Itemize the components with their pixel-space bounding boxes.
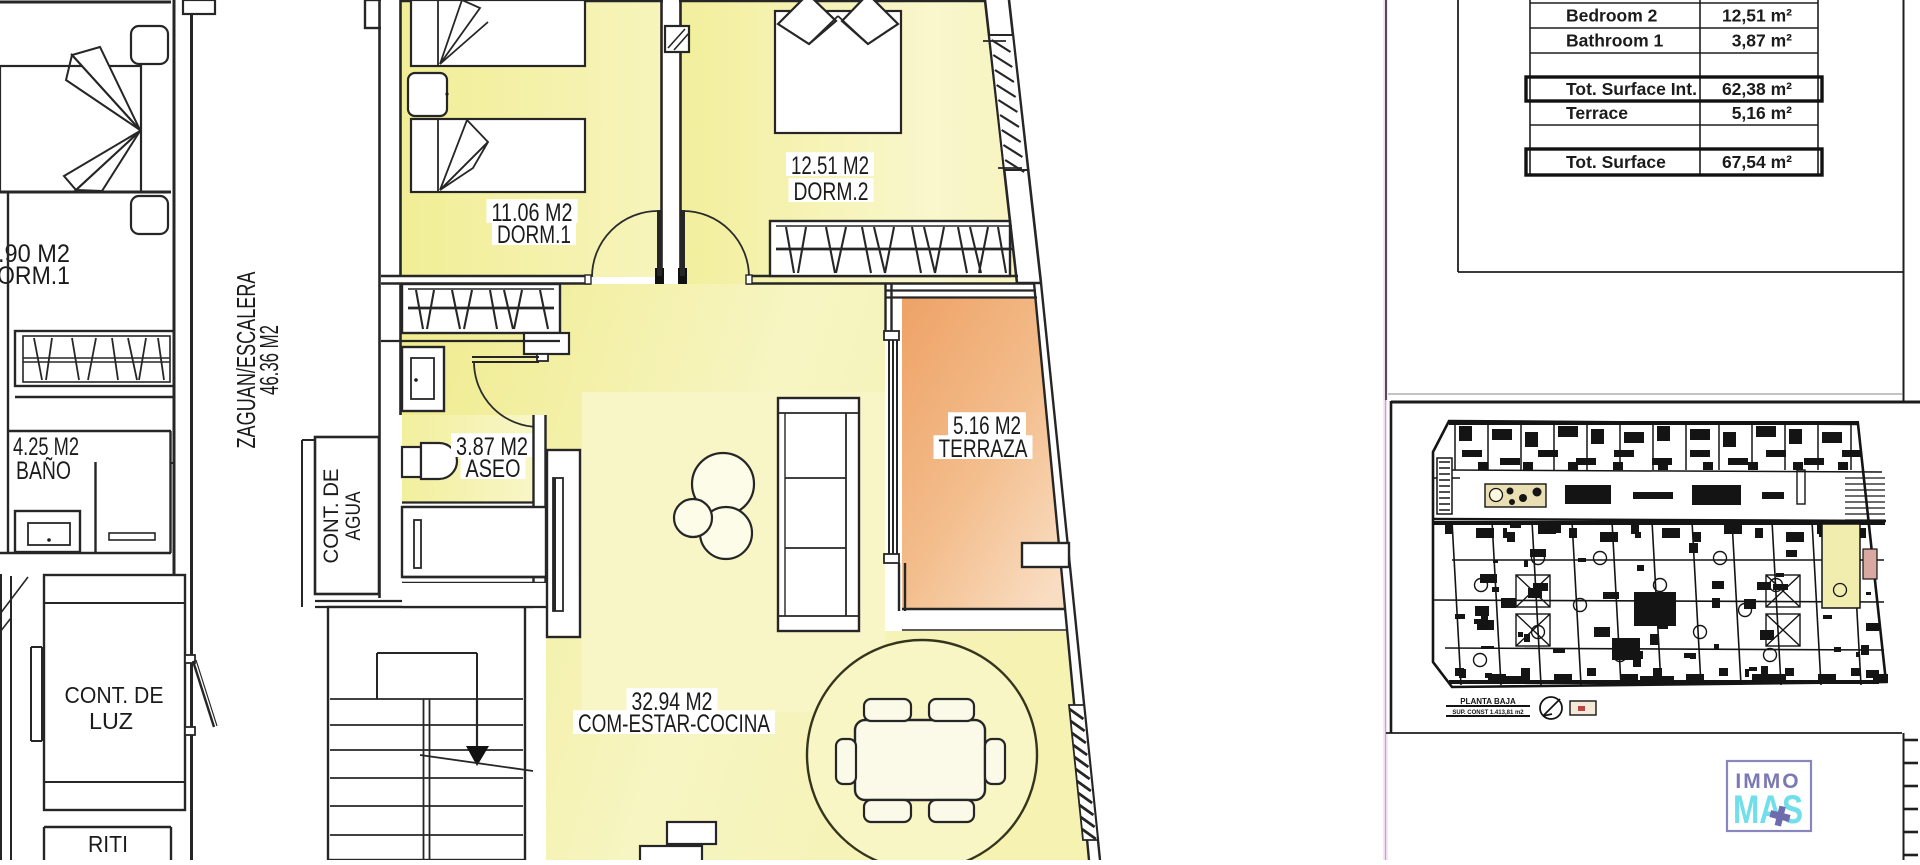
svg-text:Tot. Surface: Tot. Surface: [1566, 152, 1666, 172]
svg-text:3,87 m²: 3,87 m²: [1732, 31, 1792, 51]
svg-text:DORM.1: DORM.1: [497, 221, 571, 249]
svg-text:CONT. DE: CONT. DE: [65, 682, 164, 708]
svg-text:AGUA: AGUA: [342, 492, 365, 541]
svg-text:12,51 m²: 12,51 m²: [1722, 6, 1792, 26]
svg-text:LUZ: LUZ: [89, 708, 133, 734]
svg-text:PLANTA BAJA: PLANTA BAJA: [1460, 697, 1516, 706]
svg-text:BAÑO: BAÑO: [16, 456, 71, 485]
svg-text:COM-ESTAR-COCINA: COM-ESTAR-COCINA: [578, 710, 770, 738]
svg-text:Bathroom 1: Bathroom 1: [1566, 31, 1664, 51]
svg-text:ASEO: ASEO: [466, 455, 521, 483]
svg-text:ORM.1: ORM.1: [0, 262, 70, 290]
svg-text:SUP. CONST 1.413,81 m2: SUP. CONST 1.413,81 m2: [1452, 710, 1524, 716]
svg-text:12.51 M2: 12.51 M2: [791, 152, 869, 180]
svg-text:TERRAZA: TERRAZA: [939, 435, 1028, 463]
svg-text:RITI: RITI: [88, 831, 128, 857]
svg-text:67,54 m²: 67,54 m²: [1722, 152, 1792, 172]
svg-text:CONT. DE: CONT. DE: [320, 469, 343, 564]
svg-text:DORM.2: DORM.2: [794, 178, 869, 206]
svg-text:Bedroom 2: Bedroom 2: [1566, 6, 1658, 26]
svg-text:Terrace: Terrace: [1566, 103, 1628, 123]
svg-text:46.36 M2: 46.36 M2: [254, 325, 284, 395]
svg-text:5,16 m²: 5,16 m²: [1732, 103, 1792, 123]
svg-text:MAS: MAS: [1733, 788, 1803, 832]
svg-text:Tot. Surface Int.: Tot. Surface Int.: [1566, 79, 1697, 99]
svg-text:62,38 m²: 62,38 m²: [1722, 79, 1792, 99]
